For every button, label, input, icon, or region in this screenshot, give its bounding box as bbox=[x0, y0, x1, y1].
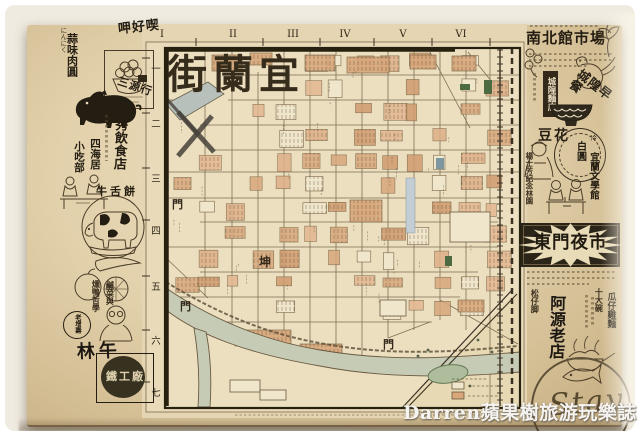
restaurant-text: 一秀飲食店 bbox=[111, 105, 128, 170]
tiny-text bbox=[591, 297, 594, 325]
place-text: 松仔脚 bbox=[530, 289, 539, 313]
grid-row-label: 三 bbox=[151, 174, 161, 185]
watermark: Darren蘋果樹旅游玩樂誌 bbox=[403, 398, 637, 425]
left-ad-stamp: 老增壽 bbox=[63, 311, 91, 339]
tiny-text bbox=[527, 283, 589, 285]
photo-of-vintage-yilan-street-map: IIIIIIIVVVI一二三四五六七街蘭宜門門坤門 呷好喫 にんにく 蒜味肉圓 … bbox=[0, 0, 640, 436]
tiny-text bbox=[533, 73, 536, 101]
street-map: IIIIIIIVVVI一二三四五六七街蘭宜門門坤門 bbox=[142, 24, 527, 418]
map-title: 街蘭宜 bbox=[166, 51, 305, 98]
left-ad-restaurant: 一秀飲食店 bbox=[111, 105, 127, 183]
grid-row-label: 六 bbox=[151, 335, 161, 347]
tiny-text bbox=[105, 115, 108, 161]
gong-name-text: 林午 bbox=[77, 340, 122, 363]
gate-label: 坤 bbox=[259, 254, 271, 269]
right-ad-literature: 宜蘭文學館 bbox=[588, 152, 598, 216]
grid-column-label: III bbox=[287, 29, 299, 40]
grid-column-label: II bbox=[229, 29, 237, 40]
right-ad-place: 松仔脚 bbox=[530, 289, 538, 319]
grid-column-label: IV bbox=[339, 29, 351, 40]
grid-column-label: I bbox=[160, 29, 164, 40]
stamp-text: 老增壽 bbox=[74, 314, 81, 336]
tiny-text bbox=[585, 295, 588, 329]
grid-row-label: 四 bbox=[151, 226, 161, 237]
photo: IIIIIIIVVVI一二三四五六七街蘭宜門門坤門 呷好喫 にんにく 蒜味肉圓 … bbox=[5, 5, 635, 431]
watermark-text: Darren蘋果樹旅游玩樂誌 bbox=[403, 402, 637, 424]
gate-label: 門 bbox=[383, 338, 394, 351]
left-ad-garlic-product: 蒜味肉圓 bbox=[66, 33, 78, 93]
tiny-text bbox=[530, 25, 600, 27]
literature-text: 宜蘭文學館 bbox=[588, 152, 599, 200]
memorial-text: 楊士芳紀念林園 bbox=[525, 152, 534, 205]
ice-circle-text: 白圓 bbox=[574, 141, 585, 171]
gong-factory-text: 鐵工廠 bbox=[106, 371, 145, 383]
garlic-product-text: 蒜味肉圓 bbox=[66, 33, 79, 77]
grid-column-label: VI bbox=[454, 29, 466, 40]
left-ad-gong-name: 林午 bbox=[77, 342, 122, 362]
photo-glare bbox=[601, 13, 635, 425]
cow-icon bbox=[78, 195, 148, 261]
grid-column-label: V bbox=[398, 29, 407, 40]
ice-small-text: 冷 bbox=[591, 135, 598, 142]
right-ad-memorial: 楊士芳紀念林園 bbox=[525, 152, 533, 220]
gate-label: 門 bbox=[172, 198, 183, 211]
grid-row-label: 五 bbox=[151, 282, 161, 293]
scholars-sketch-icon bbox=[543, 176, 589, 220]
grid-row-label: 二 bbox=[151, 119, 161, 130]
gate-label: 門 bbox=[180, 300, 191, 313]
snack-left-text: 小吃部 bbox=[73, 141, 85, 173]
snack-right-text: 四海居 bbox=[89, 138, 101, 170]
